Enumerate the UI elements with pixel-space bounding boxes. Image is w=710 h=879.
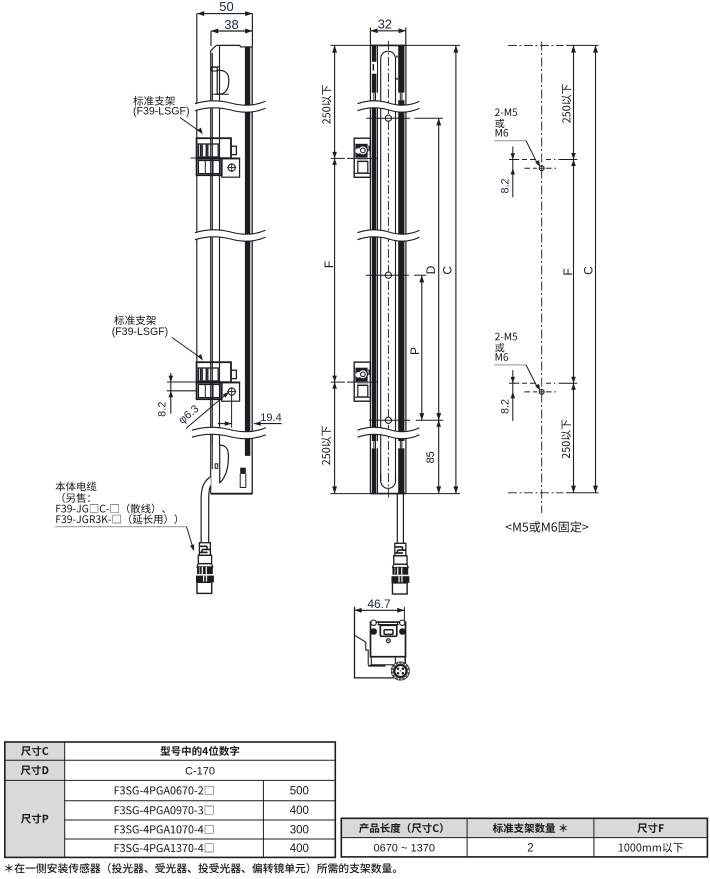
svg-text:500: 500 [290, 785, 309, 797]
svg-text:(F39-LSGF): (F39-LSGF) [133, 105, 190, 117]
svg-text:50: 50 [219, 0, 233, 14]
svg-text:400: 400 [290, 805, 309, 817]
svg-text:C: C [441, 266, 455, 275]
svg-text:C-170: C-170 [185, 765, 215, 777]
svg-text:85: 85 [425, 451, 437, 463]
svg-text:8.2: 8.2 [156, 402, 168, 417]
svg-text:46.7: 46.7 [367, 597, 391, 611]
svg-text:0670 ~ 1370: 0670 ~ 1370 [373, 843, 434, 855]
svg-text:38: 38 [224, 17, 238, 32]
svg-text:32: 32 [378, 17, 392, 32]
svg-text:19.4: 19.4 [260, 412, 281, 424]
svg-text:F: F [561, 268, 575, 275]
svg-text:8.2: 8.2 [499, 399, 511, 414]
svg-text:F: F [322, 261, 336, 268]
svg-text:C: C [582, 266, 596, 275]
svg-text:300: 300 [290, 824, 309, 836]
svg-text:(F39-LSGF): (F39-LSGF) [112, 326, 169, 338]
svg-text:2: 2 [527, 843, 533, 855]
svg-text:D: D [424, 265, 438, 274]
svg-text:8.2: 8.2 [499, 178, 511, 193]
svg-text:P: P [408, 347, 422, 355]
svg-text:400: 400 [290, 843, 309, 855]
